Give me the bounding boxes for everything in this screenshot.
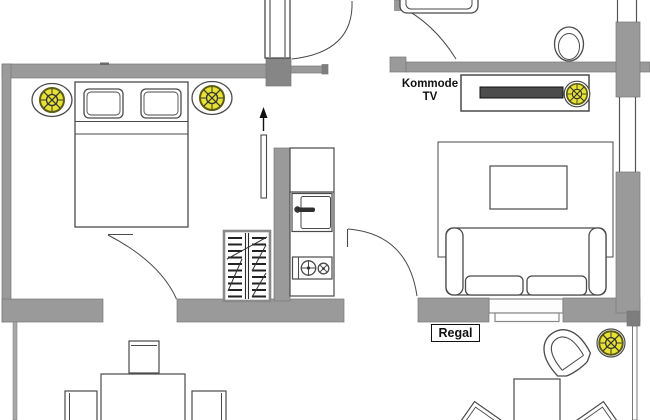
- arrow-up-head: [260, 107, 268, 118]
- wall-top: [2, 64, 268, 78]
- tv-cabinet-label-line2: TV: [399, 91, 461, 104]
- tv-cabinet-label-line1: Kommode: [399, 78, 461, 91]
- tv-cabinet-label: Kommode TV: [399, 78, 461, 104]
- wall-bottom-living-left: [418, 298, 489, 322]
- floor-plan: Kommode TV Regal: [0, 0, 650, 420]
- sofa-cushion: [466, 276, 524, 295]
- railing-left: [13, 322, 17, 420]
- floor-plan-canvas: [0, 0, 650, 420]
- tv-screen: [480, 87, 563, 98]
- terrace-chair-partial: [576, 402, 619, 420]
- kitchen: [290, 148, 334, 296]
- wall-hall-stub: [291, 66, 325, 73]
- sliding-door-leaf: [261, 135, 267, 198]
- wall-entrance-pillar: [266, 58, 291, 86]
- burner-dot: [322, 267, 325, 270]
- sink-basin: [301, 197, 331, 229]
- wall-tick: [100, 63, 109, 66]
- sofa-armrest: [446, 228, 463, 295]
- wardrobe: [224, 231, 270, 301]
- ceiling-light-icon: [564, 81, 590, 107]
- wall-bath-bottom: [406, 62, 650, 72]
- bathroom-sink-basin: [406, 0, 472, 9]
- entrance-door-leaf: [265, 0, 290, 58]
- dining-table: [101, 374, 185, 420]
- living-room: [438, 75, 613, 295]
- railing-right: [633, 326, 638, 420]
- side-table: [514, 379, 560, 420]
- ceiling-light-icon: [192, 82, 232, 115]
- wall-hall-stub-cap: [322, 65, 328, 75]
- toilet-bowl: [559, 34, 580, 60]
- bathroom: [395, 0, 584, 61]
- wall-bottom-left: [2, 299, 103, 322]
- tub-armchair: [535, 321, 595, 381]
- faucet-spout: [298, 208, 315, 213]
- ceiling-light-icon: [597, 329, 625, 357]
- coffee-table: [490, 166, 567, 209]
- pillow-inner: [144, 92, 178, 115]
- burner-dot: [307, 266, 310, 269]
- sliding-door-arrow: [260, 107, 268, 131]
- wall-kitchen: [274, 148, 290, 301]
- dining-chair: [192, 391, 226, 420]
- sofa-armrest: [589, 228, 606, 295]
- pillow-inner: [87, 92, 120, 115]
- terrace-door-panel: [495, 313, 559, 322]
- entrance-door-swing: [292, 1, 352, 59]
- terrace-door-panel: [489, 299, 563, 313]
- shelf-label: Regal: [431, 324, 480, 342]
- wall-bath-step: [390, 57, 406, 72]
- terrace-chair-partial: [460, 402, 503, 420]
- sofa-cushion: [527, 276, 587, 295]
- wall-right-upper: [616, 22, 640, 97]
- bedroom-door-swing: [108, 235, 177, 299]
- wall-right-lower: [616, 172, 640, 313]
- wall-left: [2, 64, 11, 322]
- ceiling-light-icon: [32, 84, 72, 117]
- bedroom: [75, 82, 188, 227]
- bathroom-door-swing: [399, 6, 456, 59]
- wall-right-cap: [627, 311, 640, 326]
- terrace-door-panels: [489, 299, 563, 322]
- wall-bottom-mid: [177, 299, 344, 322]
- hall-door-swing: [348, 229, 417, 296]
- terrace: [65, 321, 618, 420]
